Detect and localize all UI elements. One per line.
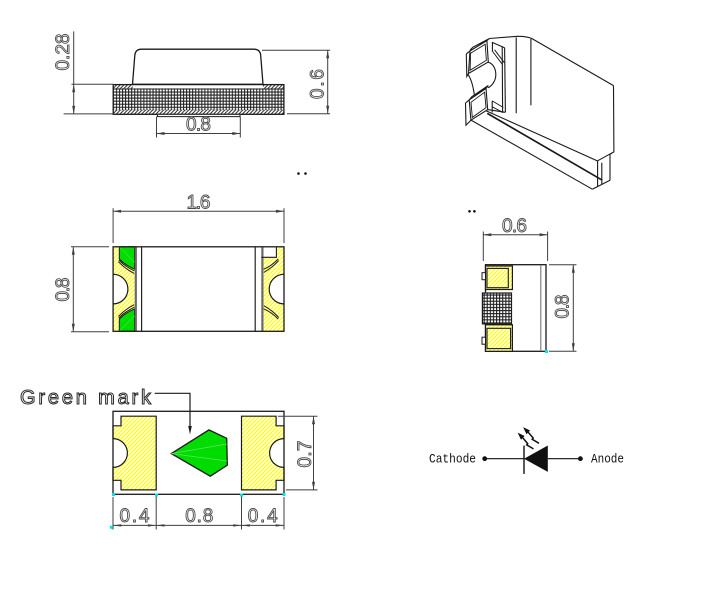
svg-text:0.8: 0.8 — [53, 278, 74, 302]
svg-text:0.8: 0.8 — [186, 115, 211, 136]
svg-text:0.4: 0.4 — [248, 506, 278, 527]
svg-text:1.6: 1.6 — [187, 193, 211, 214]
svg-text:0.8: 0.8 — [185, 506, 213, 527]
svg-text:0.7: 0.7 — [295, 441, 316, 468]
svg-text:0.28: 0.28 — [53, 34, 74, 71]
svg-text:Cathode: Cathode — [429, 452, 476, 467]
svg-text:0.6: 0.6 — [308, 69, 329, 99]
svg-text:Green mark: Green mark — [20, 387, 152, 409]
svg-text:0.8: 0.8 — [553, 295, 574, 319]
svg-text:0.6: 0.6 — [502, 216, 527, 237]
svg-text:Anode: Anode — [591, 452, 624, 467]
svg-text:0.4: 0.4 — [120, 506, 150, 527]
